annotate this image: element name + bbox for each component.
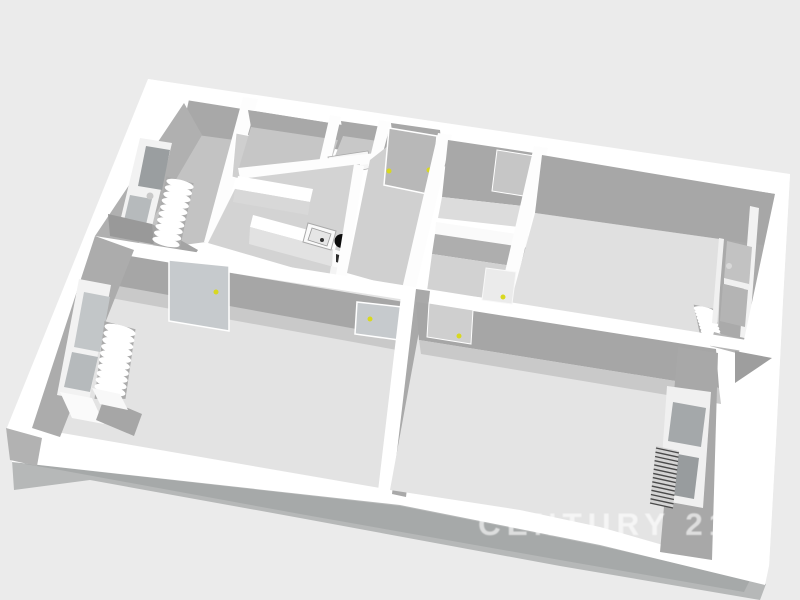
svg-text:CENTURY 21: CENTURY 21 xyxy=(478,506,732,542)
